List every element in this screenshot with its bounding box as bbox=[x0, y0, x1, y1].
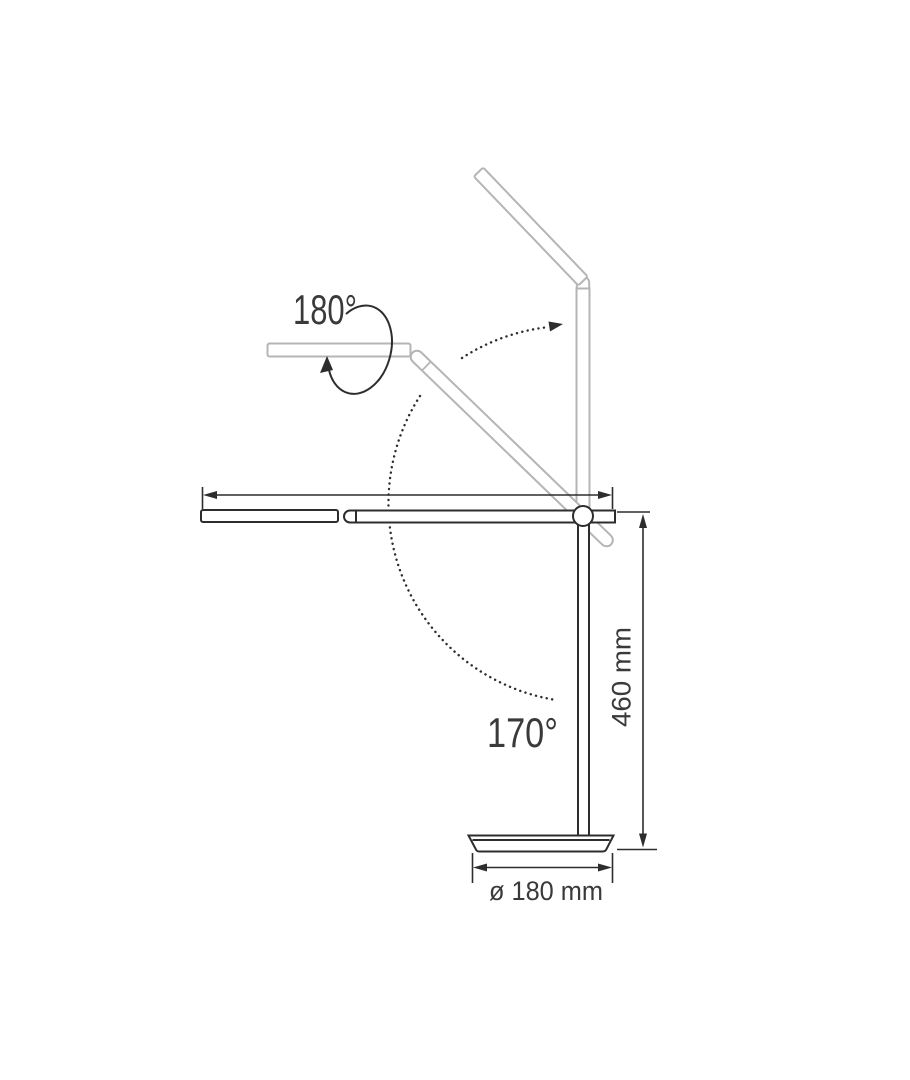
lamp-solid bbox=[201, 506, 615, 852]
lamp-dimension-drawing: 460 mm ø 180 mm 180° 170° bbox=[0, 0, 910, 1080]
lamp-head bbox=[201, 510, 338, 522]
height-dimension: 460 mm bbox=[607, 512, 658, 850]
base-diameter-label: ø 180 mm bbox=[489, 876, 603, 906]
diagram-canvas: 460 mm ø 180 mm 180° 170° bbox=[0, 0, 910, 1080]
arm-rotation-angle-label: 170° bbox=[487, 709, 558, 756]
arrowhead-right-icon bbox=[598, 864, 612, 872]
arrowhead-up-icon bbox=[639, 514, 647, 528]
base-diameter-dimension: ø 180 mm bbox=[473, 853, 613, 906]
ghost-head-horizontal bbox=[268, 344, 411, 357]
joint-pivot-circle bbox=[573, 506, 593, 526]
head-swing-arc bbox=[462, 327, 549, 358]
arrowhead-left-icon bbox=[203, 491, 217, 499]
ghost-arm-vertical bbox=[577, 289, 590, 517]
arrowhead-right-icon bbox=[598, 491, 612, 499]
lamp-base bbox=[469, 836, 614, 852]
arrowhead-down-icon bbox=[639, 834, 647, 848]
head-swing-arrowhead-icon bbox=[549, 322, 564, 332]
ghost-head-tilted bbox=[474, 168, 588, 286]
head-swing-indicator bbox=[462, 322, 563, 359]
lamp-pole bbox=[578, 520, 589, 836]
rotation-arrowhead-icon bbox=[320, 356, 333, 373]
arrowhead-left-icon bbox=[473, 864, 487, 872]
arm-swing-arc bbox=[388, 396, 556, 700]
head-rotation-angle-label: 180° bbox=[293, 286, 357, 333]
height-dimension-label: 460 mm bbox=[607, 627, 637, 727]
